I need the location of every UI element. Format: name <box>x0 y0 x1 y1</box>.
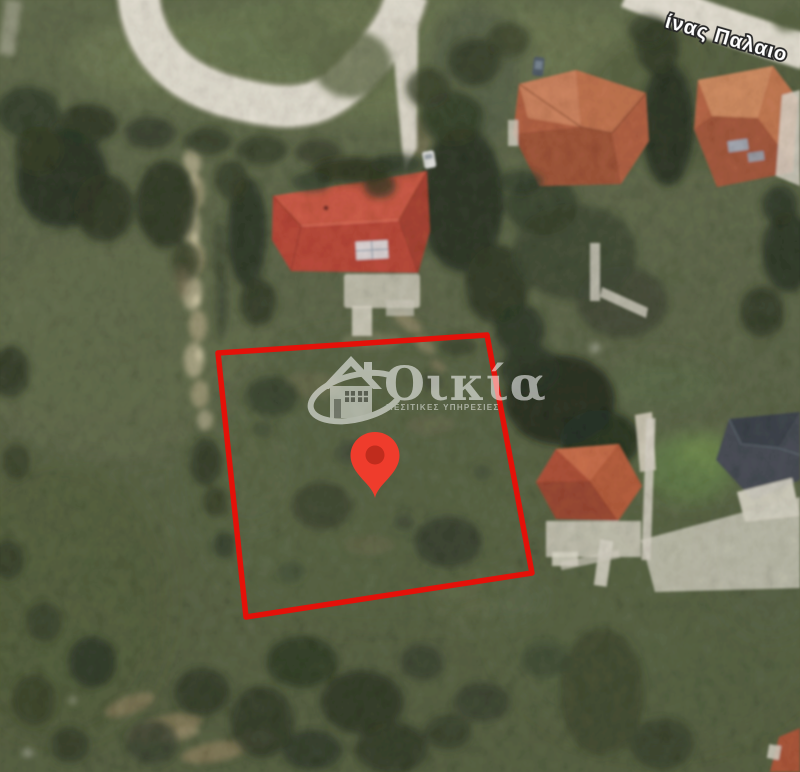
watermark-subtitle: ΜΕΣΙΤΙΚΕΣ ΥΠΗΡΕΣΙΕΣ <box>386 403 500 412</box>
satellite-map-view[interactable]: Οικία ΜΕΣΙΤΙΚΕΣ ΥΠΗΡΕΣΙΕΣ ίνας Παλαιο <box>0 0 800 772</box>
watermark-logo: Οικία ΜΕΣΙΤΙΚΕΣ ΥΠΗΡΕΣΙΕΣ <box>311 356 547 421</box>
